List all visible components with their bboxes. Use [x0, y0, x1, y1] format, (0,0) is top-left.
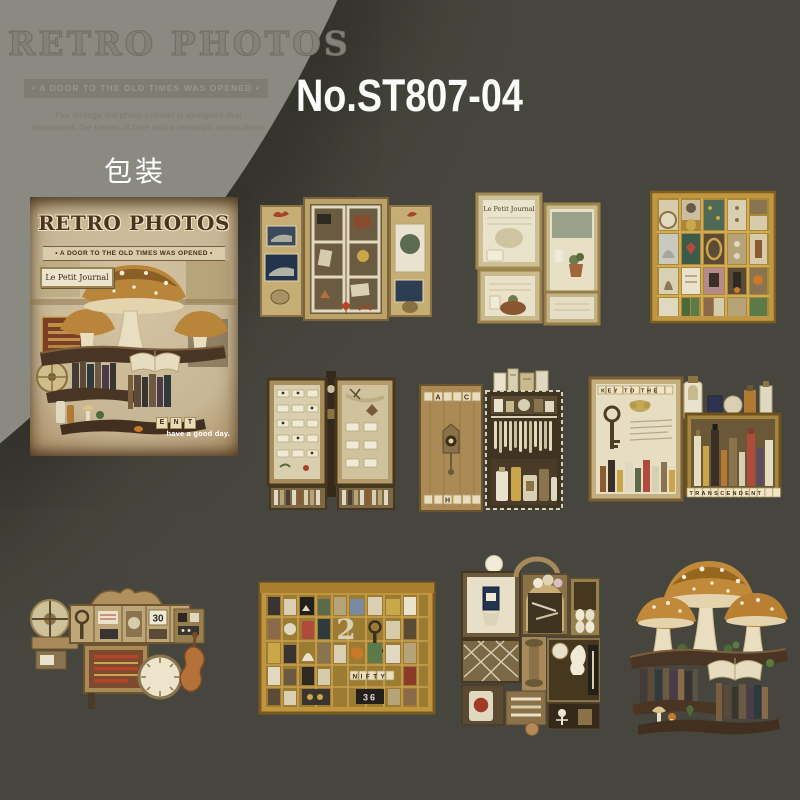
watermark-banner: • A DOOR TO THE OLD TIMES WAS OPENED • [24, 79, 268, 98]
word-tiles-key-to-the: KEY TO THE [601, 389, 660, 395]
sticker-printers-tray-trinkets [650, 188, 776, 324]
number-card-30: 30 [152, 614, 164, 625]
page: RETRO PHOTOS • A DOOR TO THE OLD TIMES W… [0, 0, 800, 800]
journal-sign: Le Petit Journal [40, 267, 114, 288]
letter-tiles: E N T [156, 417, 196, 429]
watermark-tagline-2: showcases the traces of time and a nosta… [8, 121, 288, 133]
watermark-tagline-1: The vintage old photo cabinet is designe… [8, 109, 288, 121]
sticker-stacked-shadowbox [456, 553, 600, 736]
sticker-newspaper-boxes: Le Petit Journal [475, 188, 603, 326]
product-code: No.ST807-04 [296, 70, 523, 122]
tile-letter-h: H [445, 498, 450, 505]
word-tiles-transcendent: TRANSCENDENT [690, 491, 764, 497]
sticker-printers-tray-large: 2 NIFTY 36 [258, 577, 436, 717]
word-tiles-nifty: NIFTY [353, 674, 389, 681]
big-number-2: 2 [336, 613, 355, 646]
orange-dot-sticker [134, 426, 143, 432]
package-cover: RETRO PHOTOS • A DOOR TO THE OLD TIMES W… [30, 197, 238, 456]
plate-number-36: 36 [363, 693, 377, 703]
journal-masthead: Le Petit Journal [483, 205, 534, 213]
tile-letter-a: A [435, 395, 440, 402]
sticker-letter-tile-cabinet: A C H [418, 367, 564, 513]
sticker-clock-assemblage: 30 [28, 585, 210, 717]
package-footer-note: have a good day. [167, 429, 231, 438]
package-section-label: 包装 [93, 150, 177, 190]
letter-tile: E [156, 417, 168, 429]
sticker-open-window-cabinet [259, 194, 433, 325]
sticker-specimen-panels [266, 371, 396, 512]
sticker-apothecary-shelf: KEY TO THE [588, 374, 784, 505]
sticker-mushroom-bookshelf [624, 545, 790, 738]
letter-tile: T [184, 417, 196, 429]
watermark-title: RETRO PHOTOS [8, 24, 300, 63]
package-cover-banner: • A DOOR TO THE OLD TIMES WAS OPENED • [43, 246, 225, 261]
tile-letter-c: C [464, 395, 469, 402]
package-cover-title: RETRO PHOTOS [30, 211, 238, 235]
letter-tile: N [170, 417, 182, 429]
